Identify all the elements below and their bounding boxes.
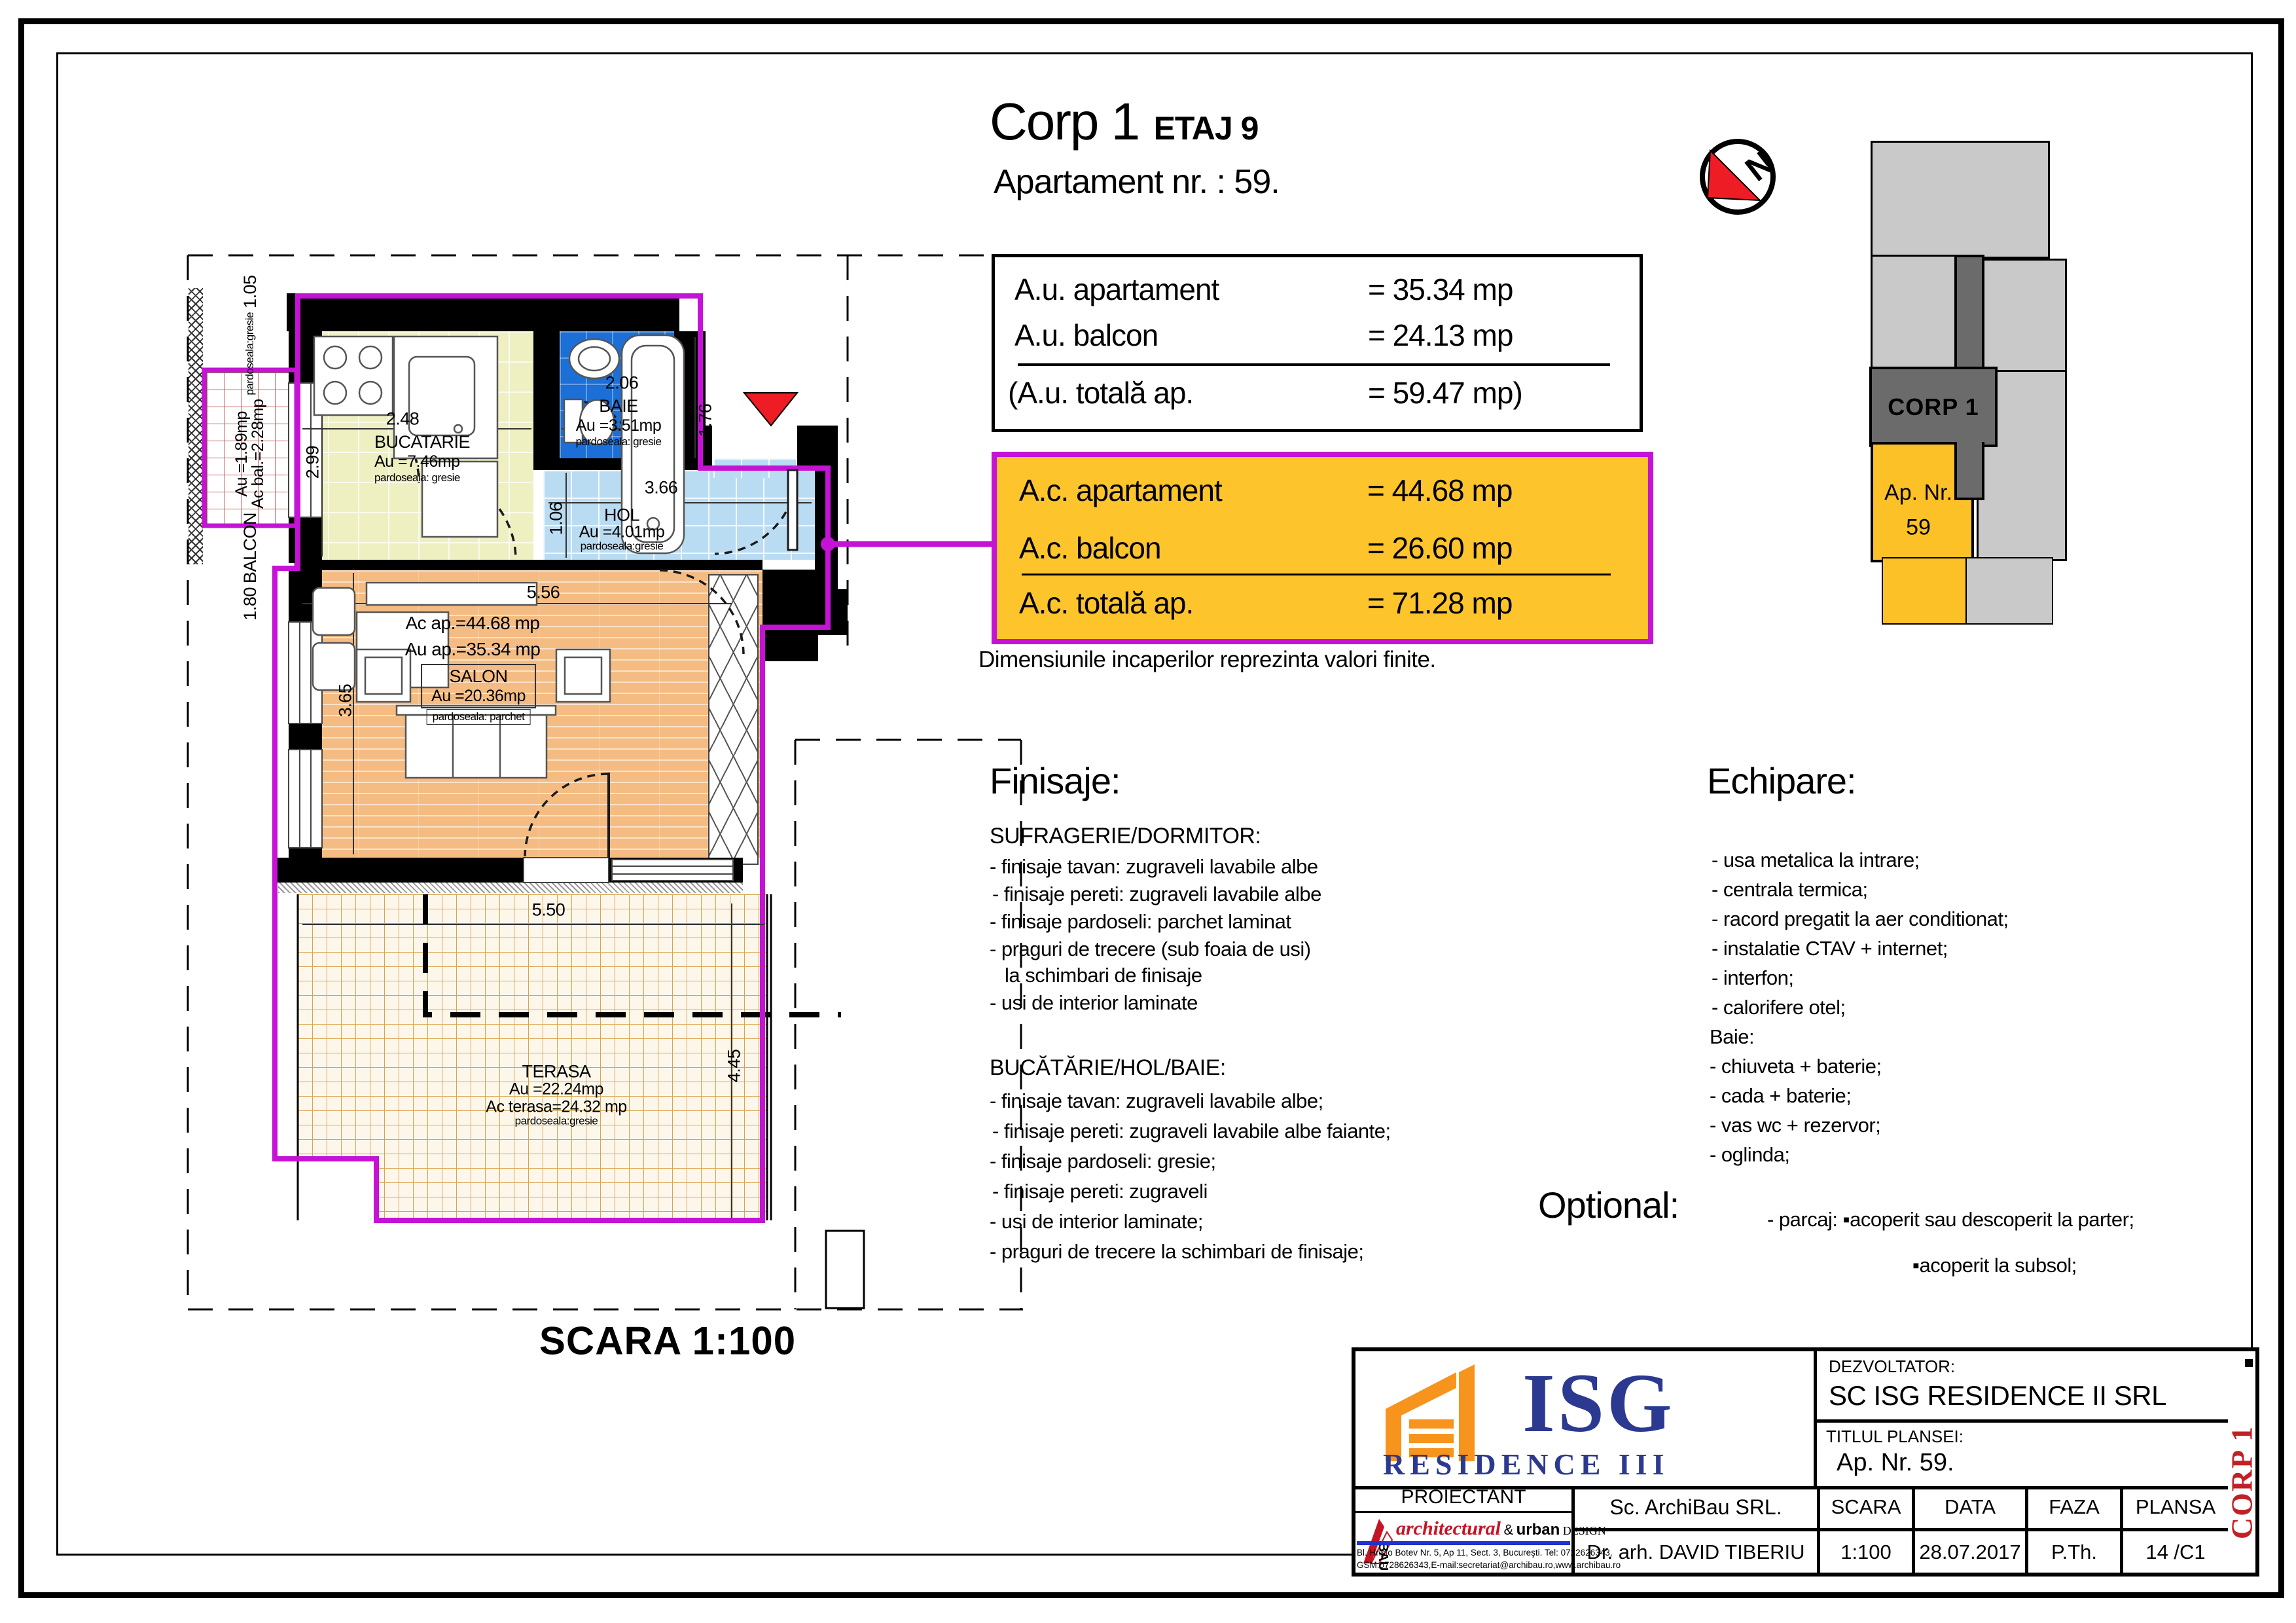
hol-dim-h: 1.06 [547, 502, 567, 536]
finisaje-item: - finisaje pardoseli: parchet laminat [990, 910, 1291, 934]
bucatarie-floor: pardoseala: gresie [374, 471, 470, 484]
sheet-subtitle: Apartament nr. : 59. [994, 162, 1280, 202]
finisaje-sec1-title: BUCĂTĂRIE/HOL/BAIE: [990, 1055, 1226, 1081]
archibau-script: architectural [1396, 1518, 1501, 1539]
ac-row1-value: = 26.60 mp [1367, 530, 1512, 566]
scara-value: 1:100 [1820, 1531, 1912, 1573]
isg-logo-cell: ISG RESIDENCE III [1355, 1351, 1817, 1489]
scale-label: SCARA 1:100 [539, 1319, 796, 1364]
kitchen-furniture [313, 337, 497, 690]
site-ap-label1: Ap. Nr. [1884, 480, 1952, 505]
au-row0-label: A.u. apartament [1014, 272, 1219, 307]
salon-ac-ap: Ac ap.=44.68 mp [406, 613, 540, 634]
baie-au: Au =3.51mp [576, 416, 662, 435]
titlul-label: TITLUL PLANSEI: [1826, 1427, 1964, 1447]
finisaje-item: la schimbari de finisaje [1005, 964, 1202, 987]
balcon-name: BALCON [241, 513, 259, 583]
plansa-value: 14 /C1 [2123, 1531, 2228, 1573]
plansa-label: PLANSA [2123, 1486, 2228, 1531]
archibau-blue-bar [1357, 1541, 1570, 1545]
baie-name: BAIE [576, 396, 662, 416]
titlul-value: Ap. Nr. 59. [1837, 1449, 1954, 1477]
baie-floor: pardoseala: gresie [576, 435, 662, 448]
sheet-title: Corp 1 [990, 92, 1139, 151]
finisaje-item: - finisaje pereti: zugraveli [992, 1180, 1208, 1203]
isg-logo-word: ISG [1522, 1355, 1675, 1451]
archibau-address1: Bl. Hristo Botev Nr. 5, Ap 11, Sect. 3, … [1357, 1548, 1612, 1558]
dezvoltator-value: SC ISG RESIDENCE II SRL [1829, 1380, 2166, 1412]
balcon-ac: Ac bal.=2.28mp [250, 399, 266, 509]
north-arrow-icon: N [1702, 141, 1782, 212]
salon-au-ap: Au ap.=35.34 mp [405, 639, 541, 660]
echipare-item: - vas wc + rezervor; [1710, 1114, 1880, 1137]
site-corp-label: CORP 1 [1888, 393, 1979, 421]
finisaje-item: - finisaje pereti: zugraveli lavabile al… [992, 883, 1321, 906]
data-cell: DATA 28.07.2017 [1915, 1486, 2028, 1573]
ac-total-label: A.c. totală ap. [1019, 585, 1193, 621]
salon-dim-h: 3.65 [336, 684, 356, 718]
au-row0-value: = 35.34 mp [1368, 272, 1513, 307]
dezvoltator-label: DEZVOLTATOR: [1829, 1357, 1955, 1377]
echipare-item: - instalatie CTAV + internet; [1712, 937, 1948, 960]
optional-heading: Optional: [1538, 1184, 1679, 1226]
echipare-item: - chiuveta + baterie; [1710, 1055, 1882, 1078]
au-row1-label: A.u. balcon [1014, 318, 1158, 353]
plansa-cell: PLANSA 14 /C1 [2123, 1486, 2228, 1573]
au-total-line [1018, 363, 1610, 366]
echipare-item: - usa metalica la intrare; [1712, 848, 1920, 872]
bucatarie-dim-w: 2.48 [386, 409, 420, 429]
baie-dim-w: 2.06 [605, 373, 639, 393]
optional-line2: ▪acoperit la subsol; [1912, 1254, 2077, 1277]
bucatarie-dim-h: 2.99 [303, 446, 323, 479]
ac-row0-value: = 44.68 mp [1367, 473, 1512, 508]
au-total-label: (A.u. totală ap. [1008, 375, 1193, 410]
balcon-au: Au =1.89mp [234, 399, 250, 509]
finisaje-item: - usi de interior laminate; [990, 1210, 1203, 1233]
optional-line1: - parcaj: ▪acoperit sau descoperit la pa… [1767, 1208, 2134, 1231]
hol-floor: pardoseala:gresie [579, 541, 665, 552]
entrance-arrow-icon [744, 393, 797, 426]
salon-au: Au =20.36mp [431, 687, 526, 706]
ac-table: A.c. apartament = 44.68 mp A.c. balcon =… [992, 452, 1653, 644]
finisaje-sec0-title: SUFRAGERIE/DORMITOR: [990, 824, 1261, 849]
finisaje-item: - finisaje tavan: zugraveli lavabile alb… [990, 855, 1318, 879]
titlul-cell: TITLUL PLANSEI: Ap. Nr. 59. [1817, 1423, 2228, 1489]
corp-strip: CORP 1 [2228, 1351, 2255, 1573]
site-block-yellow-lower [1882, 557, 1968, 625]
echipare-item: Baie: [1710, 1025, 1754, 1049]
finisaje-item: - praguri de trecere (sub foaia de usi) [990, 938, 1311, 961]
site-block-gray-lower [1965, 557, 2053, 625]
baie-labels: BAIE Au =3.51mp pardoseala: gresie [576, 396, 662, 448]
hol-name: HOL [579, 507, 665, 524]
designer-company: Sc. ArchiBau SRL. [1575, 1486, 1817, 1531]
corp-strip-dot [2245, 1359, 2253, 1367]
salon-floor: pardoseala: parchet [427, 709, 531, 725]
bucatarie-au: Au =7.46mp [374, 452, 470, 471]
ac-row1-label: A.c. balcon [1019, 530, 1161, 566]
bucatarie-name: BUCATARIE [374, 432, 470, 452]
terasa-dim-h: 4.45 [725, 1049, 745, 1083]
designer-architect: Dr. arh. DAVID TIBERIU [1575, 1531, 1817, 1573]
echipare-item: - calorifere otel; [1712, 996, 1846, 1019]
hol-labels: HOL Au =4.01mp pardoseala:gresie [579, 507, 665, 552]
terasa-au: Au =22.24mp [486, 1081, 626, 1098]
finisaje-item: - finisaje tavan: zugraveli lavabile alb… [990, 1089, 1323, 1113]
echipare-item: - interfon; [1712, 966, 1793, 990]
archibau-amp: & [1503, 1522, 1513, 1538]
finisaje-heading: Finisaje: [990, 759, 1121, 802]
bucatarie-labels: BUCATARIE Au =7.46mp pardoseala: gresie [374, 432, 470, 484]
salon-label-box: SALON Au =20.36mp [421, 664, 536, 708]
finisaje-item: - praguri de trecere la schimbari de fin… [990, 1240, 1363, 1264]
data-label: DATA [1915, 1486, 2025, 1531]
baie-dim-h: 1.76 [696, 404, 716, 437]
salon-name: SALON [431, 666, 526, 687]
data-value: 28.07.2017 [1915, 1531, 2025, 1573]
sheet-floor: ETAJ 9 [1154, 110, 1259, 147]
ac-total-value: = 71.28 mp [1367, 585, 1512, 621]
echipare-item: - centrala termica; [1712, 878, 1868, 902]
faza-value: P.Th. [2028, 1531, 2120, 1573]
designer-cell: Sc. ArchiBau SRL. Dr. arh. DAVID TIBERIU [1575, 1486, 1820, 1573]
dezvoltator-cell: DEZVOLTATOR: SC ISG RESIDENCE II SRL [1817, 1351, 2228, 1423]
sheet-header: Corp 1 ETAJ 9 [990, 92, 1258, 152]
ac-total-line [1022, 574, 1611, 575]
terasa-ac: Ac terasa=24.32 mp [486, 1098, 626, 1115]
scara-cell: SCARA 1:100 [1820, 1486, 1915, 1573]
isg-logo-sub: RESIDENCE III [1383, 1447, 1670, 1482]
hol-dim-w: 3.66 [645, 478, 678, 498]
terasa-labels: TERASA Au =22.24mp Ac terasa=24.32 mp pa… [486, 1063, 626, 1127]
balcon-floor: pardoseala:gresie [243, 312, 257, 395]
echipare-item: - cada + baterie; [1710, 1084, 1851, 1108]
echipare-item: - oglinda; [1710, 1143, 1790, 1167]
site-ap-label2: 59 [1906, 515, 1931, 540]
hol-au: Au =4.01mp [579, 524, 665, 541]
site-core-stem-lower [1954, 442, 1984, 500]
au-table: A.u. apartament = 35.34 mp A.u. balcon =… [992, 254, 1643, 432]
site-corp-bar: CORP 1 [1869, 367, 1998, 447]
au-row1-value: = 24.13 mp [1368, 318, 1513, 353]
site-block-gray [1871, 255, 1958, 371]
overhang-dashed-line [425, 894, 841, 1015]
faza-label: FAZA [2028, 1486, 2120, 1531]
proiectant-label: PROIECTANT [1355, 1486, 1571, 1513]
archibau-urban: urban [1516, 1521, 1560, 1539]
terasa-name: TERASA [486, 1063, 626, 1081]
finisaje-item: - finisaje pereti: zugraveli lavabile al… [992, 1120, 1391, 1143]
finisaje-item: - usi de interior laminate [990, 991, 1198, 1015]
balcon-dim-width: 1.80 [240, 587, 260, 621]
faza-cell: FAZA P.Th. [2028, 1486, 2123, 1573]
balcon-dim-depth: 1.05 [240, 275, 260, 308]
terasa-dim-w: 5.50 [532, 900, 565, 921]
au-total-value: = 59.47 mp) [1368, 375, 1522, 410]
echipare-heading: Echipare: [1707, 759, 1856, 802]
terasa-floor: pardoseala:gresie [486, 1116, 626, 1127]
finisaje-item: - finisaje pardoseli: gresie; [990, 1150, 1216, 1173]
proiectant-cell: PROIECTANT BAU architectural & urban DES… [1355, 1486, 1575, 1573]
site-block-gray [1979, 259, 2067, 374]
salon-dim-w: 5.56 [527, 583, 560, 603]
balcon-labels: 1.80 BALCON Au =1.89mp Ac bal.=2.28mp pa… [234, 275, 266, 620]
ac-row0-label: A.c. apartament [1019, 473, 1222, 508]
plan-sheet: N 1.80 BALCON Au =1.89mp Ac bal.=2.28mp … [0, 0, 2296, 1623]
echipare-item: - racord pregatit la aer conditionat; [1712, 907, 2009, 931]
site-block-gray [1871, 141, 2050, 259]
corp-vertical-label: CORP 1 [2225, 1425, 2259, 1539]
dimensions-note: Dimensiunile incaperilor reprezinta valo… [978, 647, 1436, 673]
scara-label: SCARA [1820, 1486, 1912, 1531]
title-block: ISG RESIDENCE III DEZVOLTATOR: SC ISG RE… [1352, 1347, 2259, 1577]
